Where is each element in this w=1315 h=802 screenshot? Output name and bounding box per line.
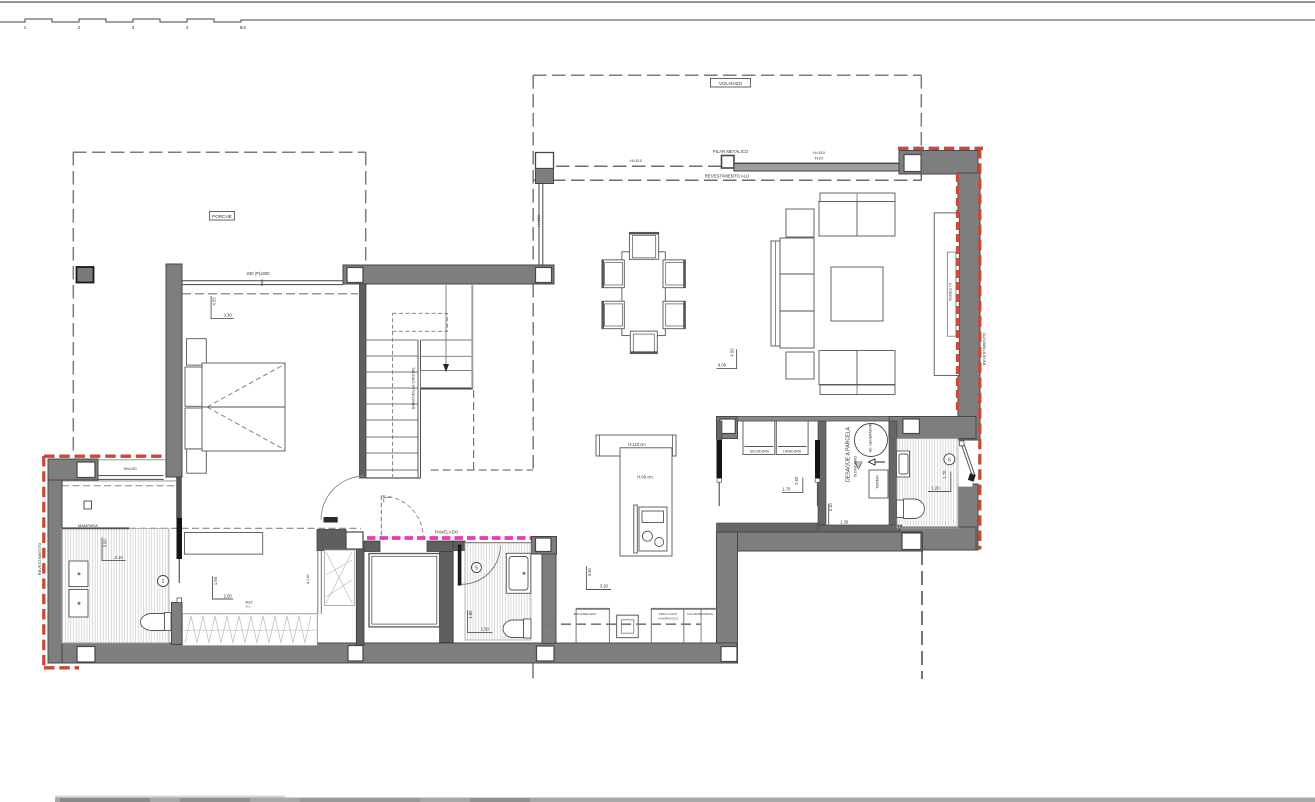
svg-text:1.20: 1.20 [931,486,940,491]
svg-text:4.50: 4.50 [730,348,735,357]
svg-text:2.10: 2.10 [115,555,124,560]
svg-text:3.30: 3.30 [224,312,233,317]
svg-text:H=150: H=150 [536,214,541,227]
svg-text:90x130: 90x130 [123,466,137,471]
svg-text:FRIG+V ALTO: FRIG+V ALTO [659,612,678,616]
svg-text:BARANDILLA CRISTAL: BARANDILLA CRISTAL [411,366,416,409]
svg-text:TERMO: TERMO [876,475,880,489]
svg-text:SUMIDERO: SUMIDERO [853,456,858,478]
svg-text:3.50: 3.50 [587,567,592,576]
svg-text:2.60: 2.60 [794,476,799,485]
svg-text:H:90 cm: H:90 cm [637,475,653,480]
svg-text:VOLADIZO: VOLADIZO [719,81,743,86]
svg-text:H=310: H=310 [813,150,826,155]
svg-text:MAMPARA: MAMPARA [78,523,98,528]
svg-text:1.50: 1.50 [481,627,490,632]
svg-text:4.55: 4.55 [212,297,217,306]
svg-text:PANELADO: PANELADO [435,530,459,535]
svg-text:1.80: 1.80 [468,610,473,619]
svg-text:9.00: 9.00 [718,362,727,367]
svg-text:1.30: 1.30 [840,519,849,524]
svg-text:C2x+MICROONDAS: C2x+MICROONDAS [687,612,713,616]
svg-text:SECADORA: SECADORA [750,450,770,454]
svg-text:3.00: 3.00 [103,539,108,548]
svg-text:5m: 5m [240,25,247,30]
svg-text:1.70: 1.70 [942,470,947,479]
svg-text:PILAR METÁLICO: PILAR METÁLICO [713,149,749,154]
svg-text:FIJO: FIJO [815,156,824,161]
svg-text:REVESTIMIENTO: REVESTIMIENTO [982,333,987,366]
svg-text:V+HORNO KLO: V+HORNO KLO [658,617,679,621]
svg-text:DESAGÜE A PARCELA: DESAGÜE A PARCELA [845,426,852,482]
svg-text:3.20: 3.20 [600,584,609,589]
svg-text:6: 6 [948,457,951,463]
svg-text:1: 1 [162,579,165,585]
svg-text:ENC+FREG+ESC: ENC+FREG+ESC [574,612,597,616]
svg-text:REVESTIMIENTO ALU: REVESTIMIENTO ALU [705,174,749,179]
svg-text:A-1: A-1 [246,605,251,609]
svg-text:REVESTIMIENTO: REVESTIMIENTO [37,543,42,576]
svg-text:5: 5 [475,566,478,572]
svg-text:2.50: 2.50 [224,593,233,598]
svg-text:1.65: 1.65 [213,576,218,585]
svg-text:H=310: H=310 [630,158,643,163]
svg-text:1.70: 1.70 [782,486,791,491]
svg-text:MUEBLE TV: MUEBLE TV [949,282,953,301]
svg-text:2.10: 2.10 [828,502,833,511]
svg-text:LAVADORA: LAVADORA [783,450,802,454]
svg-text:230 (P)x300: 230 (P)x300 [247,271,270,276]
svg-text:H:110 cm: H:110 cm [628,442,646,447]
svg-text:PORCHE: PORCHE [212,214,232,219]
svg-text:AC. GENERADOR: AC. GENERADOR [869,423,873,452]
svg-text:A.1 60: A.1 60 [306,574,310,584]
